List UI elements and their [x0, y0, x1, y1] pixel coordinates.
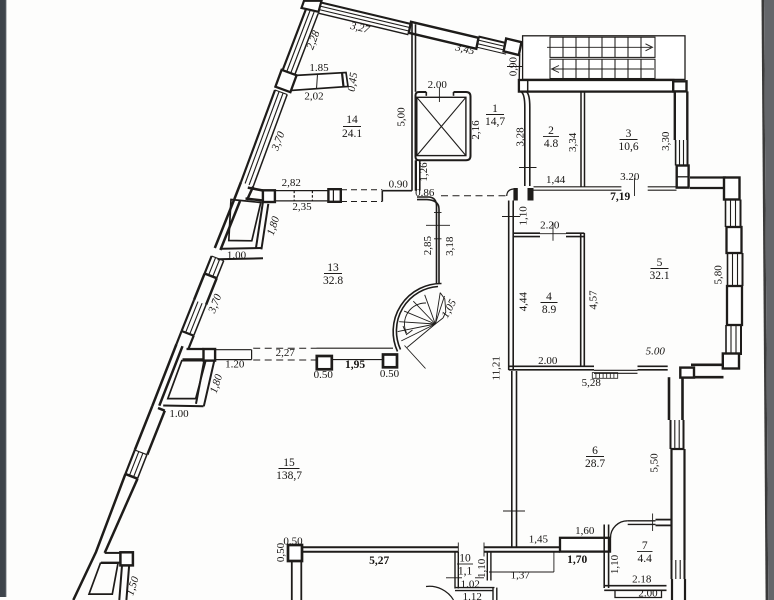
svg-text:1,60: 1,60: [575, 525, 595, 537]
svg-text:1,10: 1,10: [476, 558, 488, 578]
svg-text:1,70: 1,70: [567, 554, 587, 566]
svg-text:10,6: 10,6: [618, 141, 638, 153]
svg-text:5,50: 5,50: [649, 453, 661, 473]
svg-text:5,80: 5,80: [713, 265, 725, 285]
svg-text:1,1: 1,1: [458, 566, 473, 578]
svg-text:1,10: 1,10: [517, 206, 529, 226]
svg-text:1.85: 1.85: [309, 62, 329, 74]
svg-text:2,27: 2,27: [276, 347, 296, 359]
svg-text:0,90: 0,90: [508, 56, 520, 76]
svg-text:2.00: 2.00: [428, 79, 448, 91]
svg-text:5.00: 5.00: [646, 345, 666, 357]
svg-text:11,21: 11,21: [491, 356, 503, 380]
svg-text:6: 6: [592, 445, 598, 457]
svg-text:5: 5: [657, 257, 663, 269]
svg-text:1: 1: [492, 103, 498, 115]
svg-text:2,85: 2,85: [422, 235, 434, 255]
svg-text:1.00: 1.00: [169, 408, 189, 420]
svg-text:2.20: 2.20: [540, 219, 560, 231]
svg-text:5,27: 5,27: [369, 555, 389, 567]
svg-text:2.18: 2.18: [632, 573, 652, 585]
svg-text:1,37: 1,37: [511, 570, 531, 582]
svg-text:24.1: 24.1: [342, 128, 362, 140]
svg-text:7,19: 7,19: [610, 191, 630, 203]
svg-text:1.12: 1.12: [463, 591, 482, 600]
svg-text:28.7: 28.7: [585, 458, 605, 470]
svg-text:3: 3: [626, 128, 632, 140]
svg-text:1,44: 1,44: [546, 174, 566, 186]
svg-text:1.00: 1.00: [227, 250, 247, 262]
svg-text:1,26: 1,26: [418, 162, 430, 182]
svg-text:4: 4: [546, 291, 552, 303]
svg-text:4,57: 4,57: [588, 290, 600, 310]
svg-text:32.1: 32.1: [649, 270, 669, 282]
svg-text:1.20: 1.20: [225, 359, 245, 371]
svg-text:3,28: 3,28: [515, 127, 527, 147]
svg-text:13: 13: [327, 262, 339, 274]
svg-text:32.8: 32.8: [323, 275, 343, 287]
svg-text:14: 14: [346, 114, 358, 126]
svg-text:15: 15: [283, 457, 295, 469]
svg-text:2,35: 2,35: [292, 201, 312, 213]
svg-text:10: 10: [459, 553, 471, 565]
svg-text:3,18: 3,18: [444, 236, 456, 256]
svg-text:3.20: 3.20: [620, 171, 640, 183]
svg-text:4.4: 4.4: [638, 553, 653, 565]
svg-text:1,45: 1,45: [529, 533, 549, 545]
svg-text:7: 7: [642, 540, 648, 552]
svg-text:1,10: 1,10: [609, 554, 621, 574]
svg-text:0.90: 0.90: [389, 179, 409, 191]
svg-text:0.50: 0.50: [314, 369, 334, 381]
svg-text:4,44: 4,44: [518, 292, 530, 312]
svg-text:2,16: 2,16: [470, 120, 482, 140]
svg-text:1.02: 1.02: [461, 578, 480, 590]
svg-text:2: 2: [548, 125, 554, 137]
svg-text:2.00: 2.00: [638, 588, 658, 600]
svg-text:5,28: 5,28: [582, 377, 602, 389]
svg-text:14,7: 14,7: [485, 116, 505, 128]
svg-text:2,82: 2,82: [282, 177, 301, 189]
svg-text:3,30: 3,30: [660, 131, 672, 151]
svg-text:138,7: 138,7: [276, 470, 302, 482]
svg-text:0,50: 0,50: [275, 542, 287, 562]
svg-text:5,00: 5,00: [395, 107, 407, 127]
svg-text:2,02: 2,02: [304, 91, 323, 103]
svg-text:1,95: 1,95: [345, 359, 365, 371]
svg-text:0.86: 0.86: [415, 187, 435, 199]
svg-text:3,34: 3,34: [567, 132, 579, 152]
svg-text:8.9: 8.9: [542, 304, 557, 316]
svg-text:0.50: 0.50: [380, 368, 400, 380]
svg-text:4.8: 4.8: [544, 138, 559, 150]
svg-text:2.00: 2.00: [538, 355, 558, 367]
